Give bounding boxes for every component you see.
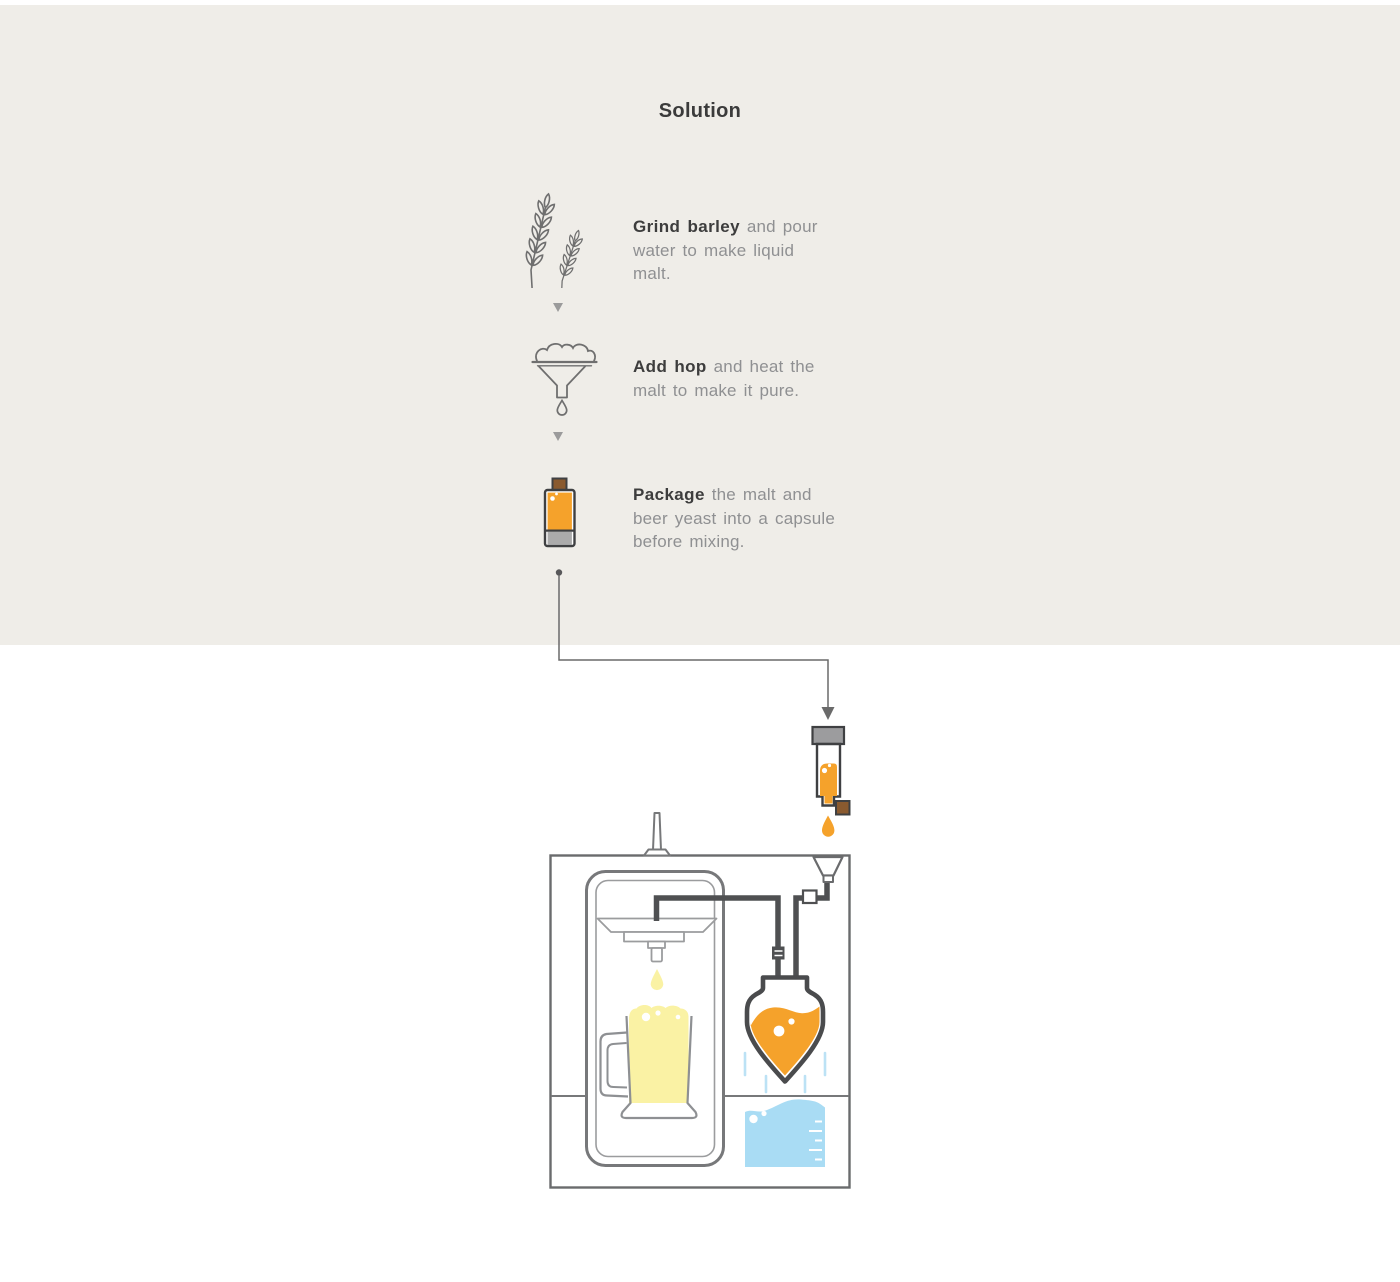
tap-handle [644,813,670,856]
step-3-text: Package the malt and beer yeast into a c… [633,483,893,554]
bubble [676,1015,681,1020]
capsule-drop [822,816,834,837]
down-arrow-icon [553,432,563,441]
bubble [655,1010,660,1015]
bubble [774,1026,785,1037]
arrowhead-icon [822,707,835,720]
step-1-keyword: Grind barley [633,217,740,236]
beer [629,1005,689,1103]
capsule-cap [553,479,567,491]
bubble [550,496,555,501]
page-title: Solution [0,100,1400,123]
bubble [749,1115,757,1123]
capsule-icon [540,475,580,550]
bubble [642,1013,650,1021]
hop-funnel-icon [530,340,600,418]
barley-icon [523,182,607,288]
bubble [555,493,558,496]
bubble [828,764,831,767]
bubble [761,1111,766,1116]
pipe-valve [772,947,785,960]
connector-line [556,569,835,720]
bubble [788,1018,794,1024]
brewing-machine-illustration [540,560,870,1200]
pipe-connector [803,891,817,904]
down-arrow-icon [553,303,563,312]
capsule-cap [813,727,845,744]
capsule-plug [836,801,850,815]
bubble [822,768,827,773]
step-3-keyword: Package [633,485,705,504]
step-2-text: Add hop and heat the malt to make it pur… [633,355,883,402]
capsule-bottom [548,532,572,545]
capsule [813,727,850,837]
step-2-keyword: Add hop [633,357,707,376]
step-1-text: Grind barley and pour water to make liqu… [633,215,883,286]
